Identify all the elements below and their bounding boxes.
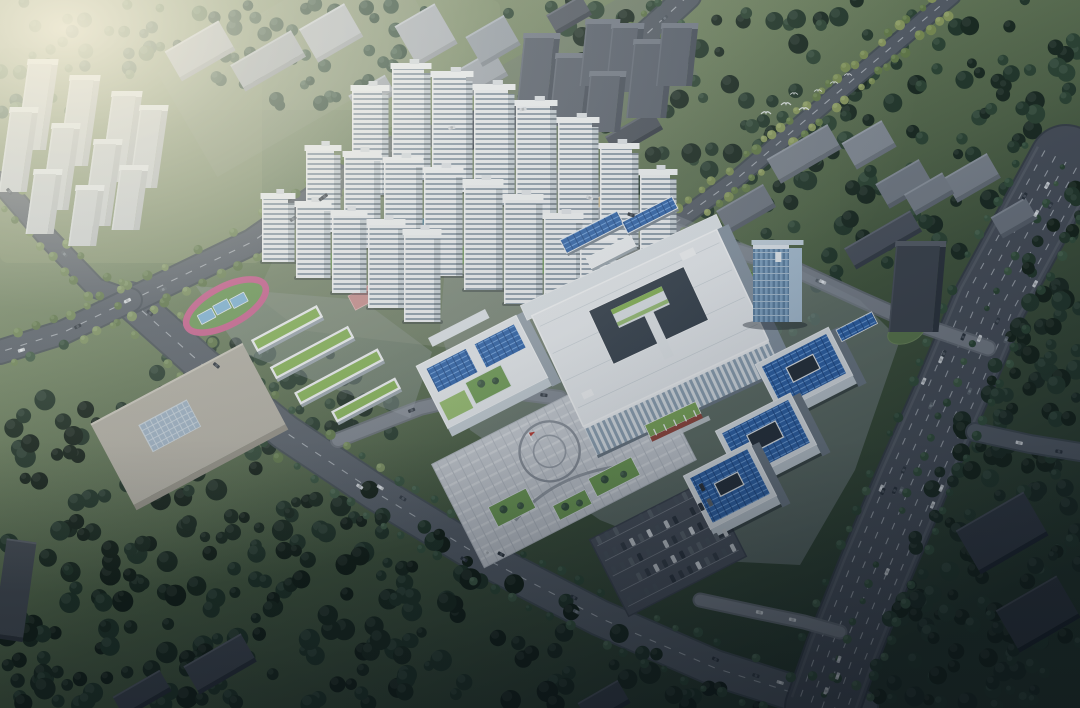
architectural-rendering: Aerial dusk rendering of a hospital camp… bbox=[0, 0, 1080, 708]
aerial-masterplan-rendering bbox=[0, 0, 1080, 708]
sun-haze-overlay bbox=[0, 0, 1080, 708]
lighting-layer bbox=[0, 0, 1080, 708]
